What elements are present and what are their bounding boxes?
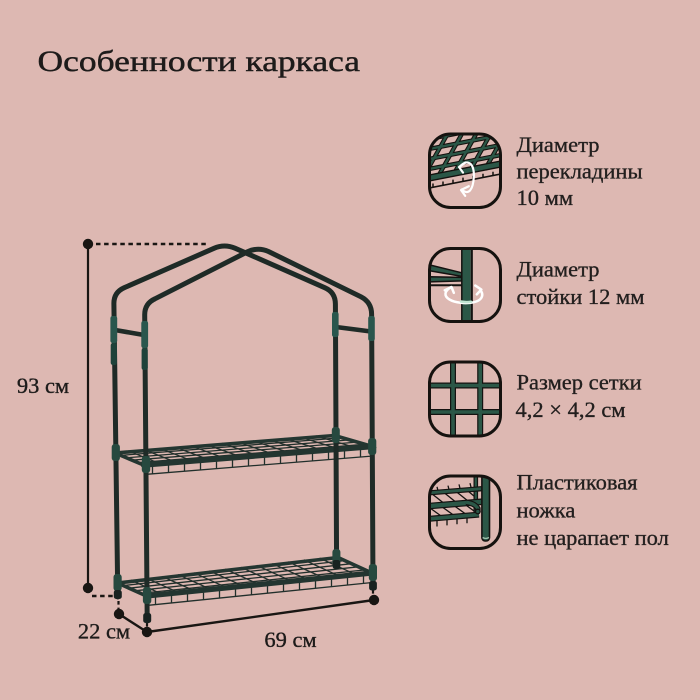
- svg-text:10 мм: 10 мм: [517, 185, 574, 210]
- svg-text:ножка: ножка: [517, 497, 576, 522]
- svg-text:Размер сетки: Размер сетки: [517, 370, 642, 395]
- svg-text:69 см: 69 см: [264, 627, 316, 652]
- svg-text:22 см: 22 см: [78, 619, 130, 644]
- svg-text:93 см: 93 см: [17, 373, 69, 398]
- svg-text:стойки 12 мм: стойки 12 мм: [517, 284, 645, 309]
- svg-text:Особенности каркаса: Особенности каркаса: [38, 45, 361, 78]
- svg-text:4,2 × 4,2 см: 4,2 × 4,2 см: [516, 397, 626, 422]
- svg-text:Диаметр: Диаметр: [517, 132, 600, 157]
- svg-text:перекладины: перекладины: [517, 159, 643, 184]
- svg-text:не царапает пол: не царапает пол: [517, 525, 669, 550]
- svg-text:Пластиковая: Пластиковая: [517, 470, 638, 495]
- svg-text:Диаметр: Диаметр: [517, 257, 600, 282]
